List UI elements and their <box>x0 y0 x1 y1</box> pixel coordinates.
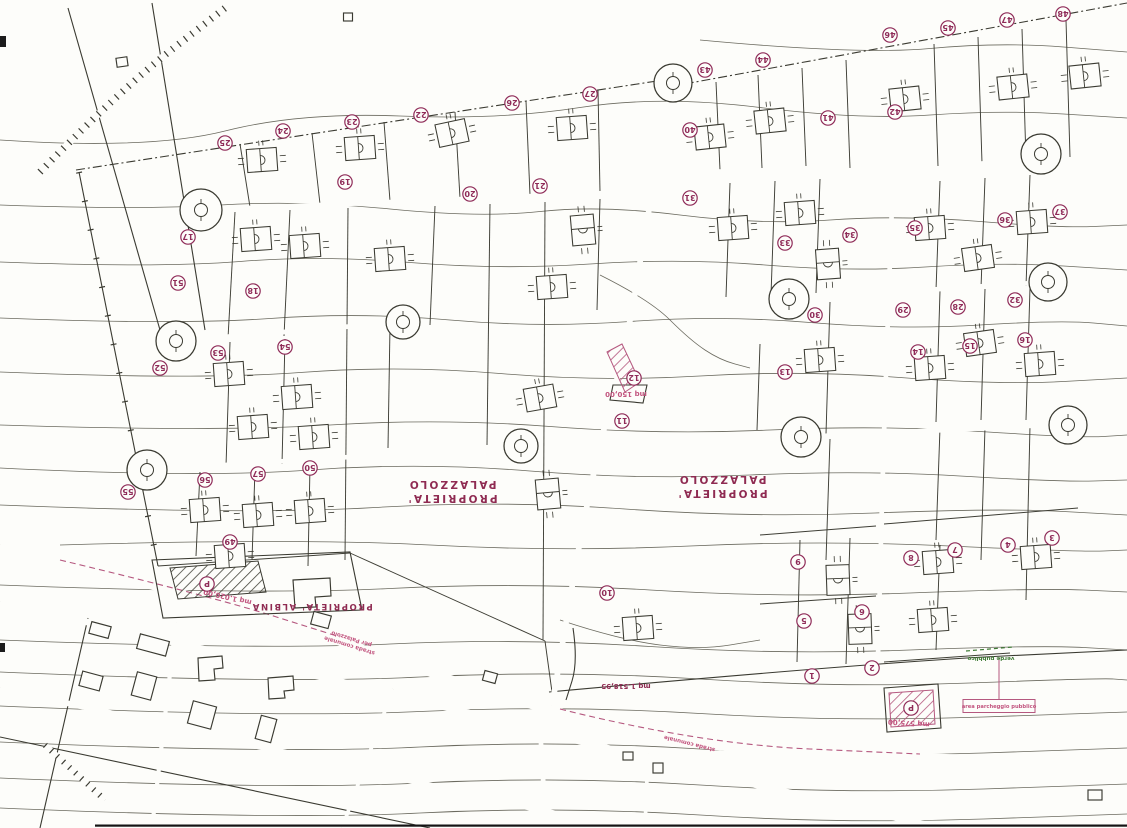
dimension-tick <box>446 114 447 119</box>
cul-de-sac <box>386 305 420 339</box>
lot-number: 4 <box>1001 538 1015 552</box>
house <box>365 238 415 272</box>
svg-text:33: 33 <box>779 238 790 247</box>
svg-text:8: 8 <box>908 553 914 562</box>
svg-text:32: 32 <box>1009 295 1020 304</box>
house <box>795 339 845 373</box>
house <box>204 353 254 387</box>
dimension-tick <box>539 378 540 383</box>
lot-number: 6 <box>855 605 869 619</box>
svg-text:49: 49 <box>224 537 236 546</box>
albina-property-label: PROPRIETA' ALBINA <box>251 601 373 611</box>
dimension-tick <box>543 470 544 476</box>
svg-text:5: 5 <box>801 616 807 625</box>
svg-text:52: 52 <box>154 363 165 372</box>
svg-text:PROPRIETA': PROPRIETA' <box>406 492 497 504</box>
svg-text:23: 23 <box>346 117 357 126</box>
property-label: PROPRIETA'PALAZZOLO <box>406 478 497 504</box>
cul-de-sac <box>769 279 809 319</box>
svg-text:mq 1.518,95: mq 1.518,95 <box>601 682 650 690</box>
lot-number: 31 <box>683 191 697 205</box>
scan-edge-mark <box>0 36 6 47</box>
lot-line <box>543 202 545 640</box>
dimension-tick <box>1081 57 1082 62</box>
building <box>1088 790 1102 800</box>
lot-line <box>388 326 390 448</box>
svg-text:43: 43 <box>699 65 710 74</box>
lot-number: 21 <box>533 179 547 193</box>
house <box>826 555 859 604</box>
boundary-line <box>0 737 430 828</box>
lot-line <box>981 427 985 560</box>
svg-text:24: 24 <box>277 126 289 135</box>
dimension-tick <box>710 117 711 122</box>
svg-text:34: 34 <box>844 230 856 239</box>
property-label: PROPRIETA'PALAZZOLO <box>676 473 767 499</box>
lot-line <box>312 133 320 204</box>
dimension-tick <box>955 263 961 264</box>
contour-line <box>0 504 1127 515</box>
lot-number: 18 <box>246 284 260 298</box>
svg-text:45: 45 <box>942 23 954 32</box>
house <box>744 99 795 135</box>
dimension-tick <box>1031 87 1037 88</box>
lot-number: 36 <box>998 213 1012 227</box>
dimension-tick <box>1103 71 1109 72</box>
houses-layer <box>79 13 1110 800</box>
building <box>79 671 103 691</box>
lot-number: 43 <box>698 63 712 77</box>
area-label: mq 1.518,95 <box>601 682 650 690</box>
house <box>908 599 958 633</box>
lot-number: 35 <box>908 221 922 235</box>
scan-edge-mark <box>0 643 5 652</box>
lot-number: 26 <box>505 96 519 110</box>
dimension-tick <box>977 238 978 243</box>
house <box>280 225 330 259</box>
cul-de-sac <box>654 64 692 102</box>
svg-text:41: 41 <box>822 113 834 122</box>
lot-number: 44 <box>756 53 770 67</box>
building <box>344 13 353 21</box>
dimension-tick <box>728 137 734 138</box>
lot-number: 30 <box>808 308 822 322</box>
svg-text:55: 55 <box>122 487 134 496</box>
dimension-tick <box>470 131 476 132</box>
dimension-tick <box>746 126 752 127</box>
lot-number: 57 <box>251 467 265 481</box>
boxed-label-text: area parcheggio pubblico <box>962 704 1037 710</box>
lot-number: 46 <box>883 28 897 42</box>
road-surface <box>201 191 655 210</box>
lot-number: 53 <box>211 346 225 360</box>
house <box>228 406 278 440</box>
dimension-tick <box>549 470 550 476</box>
lot-line <box>802 68 806 166</box>
lot-line <box>487 204 490 445</box>
contour-line <box>0 369 1127 383</box>
cul-de-sac <box>180 189 222 231</box>
lot-line <box>1066 20 1070 157</box>
svg-text:22: 22 <box>415 110 426 119</box>
lot-number: 56 <box>198 473 212 487</box>
dimension-tick <box>578 206 579 212</box>
svg-text:4: 4 <box>1005 540 1011 549</box>
svg-text:15: 15 <box>964 341 976 350</box>
lot-number: 2 <box>865 661 879 675</box>
svg-text:11: 11 <box>616 416 628 425</box>
svg-text:14: 14 <box>912 347 924 356</box>
dimension-tick <box>956 343 962 344</box>
svg-text:19: 19 <box>339 177 351 186</box>
svg-text:54: 54 <box>279 342 291 351</box>
cul-de-sac <box>127 450 167 490</box>
cul-de-sac <box>1049 406 1087 444</box>
road-surface <box>645 753 648 828</box>
lot-line <box>846 538 850 664</box>
contour-line <box>0 778 1127 791</box>
road-surface <box>147 446 521 470</box>
dimension-tick <box>728 132 734 133</box>
lot-number: 7 <box>948 543 962 557</box>
dimension-tick <box>881 104 887 105</box>
road-name-label: strada comunaleper Palazzolo <box>323 628 377 656</box>
building <box>116 57 128 67</box>
boundary-line <box>40 618 88 828</box>
scan-edge-line <box>95 825 1127 827</box>
svg-text:PALAZZOLO: PALAZZOLO <box>678 473 767 485</box>
lot-number: 23 <box>345 115 359 129</box>
lot-number: 32 <box>1008 293 1022 307</box>
lot-number: 25 <box>218 136 232 150</box>
contour-line <box>700 40 1127 52</box>
house <box>815 239 849 289</box>
dimension-tick <box>923 99 929 100</box>
lot-number: P <box>200 577 214 591</box>
dimension-tick <box>975 324 976 329</box>
dimension-tick <box>901 80 902 85</box>
lot-number: 24 <box>276 124 290 138</box>
dimension-tick <box>989 92 995 93</box>
svg-text:7: 7 <box>952 545 958 554</box>
building <box>131 672 157 700</box>
dimension-tick <box>1061 75 1067 76</box>
lot-number: 33 <box>778 236 792 250</box>
svg-text:9: 9 <box>795 557 801 566</box>
lot-number: 37 <box>1053 205 1067 219</box>
road-surface <box>176 322 403 341</box>
road-surface <box>801 424 1068 437</box>
dimension-tick <box>788 116 794 117</box>
l-shaped-building <box>268 676 294 699</box>
cul-de-sac <box>1021 134 1061 174</box>
dimension-tick <box>766 102 767 107</box>
house <box>180 489 230 523</box>
dimension-tick <box>547 512 548 518</box>
dimension-tick <box>995 252 1001 253</box>
svg-text:40: 40 <box>684 125 696 134</box>
lot-line <box>978 37 982 163</box>
lot-line <box>350 553 545 641</box>
dimension-tick <box>905 79 906 84</box>
building <box>623 752 633 760</box>
svg-text:42: 42 <box>889 107 900 116</box>
lot-line <box>1026 426 1030 600</box>
svg-text:PALAZZOLO: PALAZZOLO <box>408 478 497 490</box>
svg-text:56: 56 <box>199 475 211 484</box>
lot-line <box>934 44 938 166</box>
house <box>613 607 663 641</box>
lot-line <box>345 208 348 560</box>
lot-number: 34 <box>843 228 857 242</box>
lot-line <box>597 199 600 310</box>
dimension-tick <box>557 391 563 392</box>
svg-text:3: 3 <box>1049 533 1055 542</box>
house <box>952 235 1004 272</box>
house <box>513 375 566 414</box>
building <box>653 763 663 773</box>
lot-number: 52 <box>153 361 167 375</box>
svg-text:25: 25 <box>219 138 231 147</box>
svg-text:21: 21 <box>534 181 546 190</box>
lot-number: 19 <box>338 175 352 189</box>
lot-line <box>981 178 985 288</box>
lot-number: 49 <box>223 535 237 549</box>
dimension-tick <box>770 101 771 106</box>
svg-text:50: 50 <box>304 463 316 472</box>
dimension-tick <box>428 134 434 135</box>
lot-number: 40 <box>683 123 697 137</box>
contour-line <box>0 203 1127 227</box>
l-shaped-building <box>198 656 223 681</box>
lot-line <box>226 342 230 466</box>
dimension-tick <box>973 239 974 244</box>
lot-line <box>846 60 850 168</box>
lot-line <box>936 428 940 540</box>
dimension-tick <box>1061 81 1067 82</box>
area-label: mq 150,00 <box>605 390 647 398</box>
lot-number: 29 <box>896 303 910 317</box>
lot-line <box>760 596 876 604</box>
dimension-tick <box>998 343 1004 344</box>
lot-number: 11 <box>615 414 629 428</box>
svg-text:1: 1 <box>809 671 815 680</box>
cul-de-sac <box>504 429 538 463</box>
dimension-tick <box>923 94 929 95</box>
svg-text:26: 26 <box>506 98 518 107</box>
svg-text:13: 13 <box>779 367 790 376</box>
house <box>335 127 385 161</box>
svg-text:28: 28 <box>952 302 964 311</box>
svg-text:16: 16 <box>1019 335 1031 344</box>
house <box>272 376 322 410</box>
building <box>255 715 277 742</box>
lot-number: 45 <box>941 21 955 35</box>
road-surface <box>878 178 893 658</box>
scanned-site-plan-page: PROPRIETA'PALAZZOLOPROPRIETA'PALAZZOLOPR… <box>0 0 1127 828</box>
lot-number: 54 <box>278 340 292 354</box>
dimension-tick <box>516 398 522 399</box>
lot-number: 42 <box>888 105 902 119</box>
lot-number: P <box>904 701 918 715</box>
boundary-line <box>79 172 158 566</box>
lot-number: 17 <box>181 230 195 244</box>
house <box>527 266 577 300</box>
lot-number: 1 <box>805 669 819 683</box>
svg-text:12: 12 <box>628 373 639 382</box>
lot-line <box>384 122 390 201</box>
lot-line <box>826 439 830 560</box>
dimension-tick <box>1009 68 1010 73</box>
lot-number: 50 <box>303 461 317 475</box>
cul-de-sac <box>781 417 821 457</box>
dimension-tick <box>706 118 707 123</box>
svg-text:27: 27 <box>584 89 595 98</box>
dimension-tick <box>979 323 980 328</box>
svg-text:31: 31 <box>684 193 696 202</box>
svg-text:verde pubblico: verde pubblico <box>967 655 1014 661</box>
house <box>1007 201 1057 235</box>
lot-line <box>757 344 760 430</box>
house <box>987 65 1038 101</box>
green-area-label: verde pubblico <box>967 655 1014 661</box>
house <box>231 218 281 252</box>
lot-number: 8 <box>904 551 918 565</box>
cul-de-sac <box>156 321 196 361</box>
svg-text:46: 46 <box>884 30 896 39</box>
cul-de-sac <box>1029 263 1067 301</box>
road-surface <box>342 689 393 828</box>
dimension-tick <box>1013 67 1014 72</box>
lot-line <box>228 212 235 338</box>
dimension-tick <box>450 114 451 119</box>
lot-number: 3 <box>1045 531 1059 545</box>
lot-line <box>545 641 552 692</box>
svg-text:20: 20 <box>464 189 476 198</box>
lot-line <box>526 101 530 195</box>
dimension-tick <box>553 512 554 518</box>
lot-number: 20 <box>463 187 477 201</box>
lot-number: 27 <box>583 87 597 101</box>
dimension-tick <box>881 98 887 99</box>
svg-text:30: 30 <box>809 310 821 319</box>
dimension-tick <box>954 258 960 259</box>
lot-line <box>760 526 876 535</box>
svg-text:PROPRIETA' ALBINA: PROPRIETA' ALBINA <box>251 601 373 611</box>
svg-text:PROPRIETA': PROPRIETA' <box>676 487 767 499</box>
svg-text:53: 53 <box>212 348 223 357</box>
lot-number: 47 <box>1000 13 1014 27</box>
dimension-tick <box>558 397 564 398</box>
site-plan-svg: PROPRIETA'PALAZZOLOPROPRIETA'PALAZZOLOPR… <box>0 0 1127 828</box>
svg-text:mq 150,00: mq 150,00 <box>605 390 647 398</box>
svg-text:17: 17 <box>182 232 193 241</box>
lot-number: 55 <box>121 485 135 499</box>
lot-line <box>771 181 775 295</box>
dimension-tick <box>1103 76 1109 77</box>
lot-number: 9 <box>791 555 805 569</box>
building <box>482 670 497 683</box>
building <box>187 701 216 729</box>
boundary-line <box>566 628 575 700</box>
svg-text:P: P <box>204 579 210 588</box>
svg-text:29: 29 <box>897 305 909 314</box>
svg-text:36: 36 <box>999 215 1011 224</box>
dimension-tick <box>517 404 523 405</box>
contour-line <box>0 742 1127 755</box>
svg-text:2: 2 <box>869 663 875 672</box>
svg-text:47: 47 <box>1001 15 1012 24</box>
svg-text:P: P <box>908 703 914 712</box>
house <box>1015 343 1065 377</box>
svg-text:51: 51 <box>172 278 184 287</box>
lot-number: 22 <box>414 108 428 122</box>
lot-number: 12 <box>627 371 641 385</box>
lot-number: 15 <box>963 339 977 353</box>
dimension-tick <box>1085 56 1086 61</box>
road-surface <box>669 154 1041 173</box>
lot-number: 10 <box>600 586 614 600</box>
dimension-tick <box>788 121 794 122</box>
lot-number: 13 <box>778 365 792 379</box>
dimension-tick <box>535 379 536 384</box>
house <box>289 416 339 450</box>
svg-text:48: 48 <box>1057 9 1069 18</box>
svg-text:44: 44 <box>757 55 769 64</box>
dimension-tick <box>1031 82 1037 83</box>
lot-number: 48 <box>1056 7 1070 21</box>
dimension-tick <box>429 140 435 141</box>
house <box>547 107 597 141</box>
lot-number: 16 <box>1018 333 1032 347</box>
house <box>879 77 930 113</box>
svg-text:35: 35 <box>909 223 921 232</box>
svg-text:6: 6 <box>859 607 865 616</box>
svg-text:37: 37 <box>1054 207 1065 216</box>
lot-number: 5 <box>797 614 811 628</box>
house <box>534 468 569 519</box>
lot-number: 41 <box>821 111 835 125</box>
dimension-tick <box>996 258 1002 259</box>
svg-text:57: 57 <box>252 469 263 478</box>
house <box>708 207 758 241</box>
svg-text:10: 10 <box>601 588 613 597</box>
dimension-tick <box>989 86 995 87</box>
lot-number: 28 <box>951 300 965 314</box>
road-surface <box>40 8 225 172</box>
dimension-tick <box>582 248 583 254</box>
dimension-tick <box>588 248 589 254</box>
lot-number: 51 <box>171 276 185 290</box>
lot-line <box>430 206 435 325</box>
lot-number: 14 <box>911 345 925 359</box>
dimension-tick <box>957 348 963 349</box>
svg-text:18: 18 <box>247 286 259 295</box>
dimension-tick <box>686 142 692 143</box>
dimension-tick <box>584 206 585 212</box>
dimension-tick <box>469 125 475 126</box>
building <box>311 611 332 628</box>
dimension-tick <box>997 337 1003 338</box>
dimension-tick <box>746 120 752 121</box>
